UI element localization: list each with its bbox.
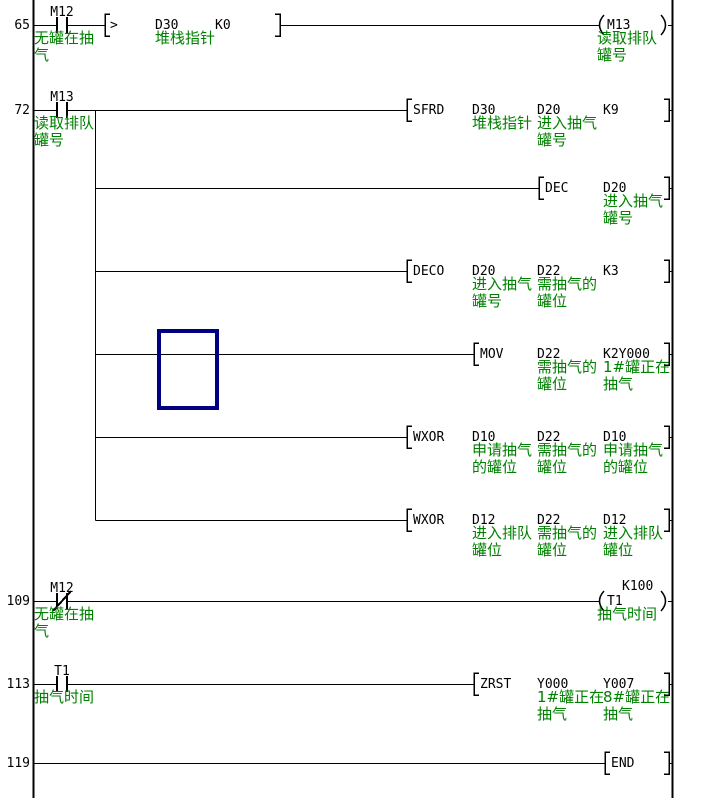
instruction-open-bracket	[407, 99, 412, 121]
contact-comment: 气	[34, 622, 49, 640]
instruction-end[interactable]: END	[34, 752, 673, 774]
operand-comment: 1#罐正在	[603, 358, 670, 376]
contact-M12[interactable]: M12无罐在抽气	[34, 581, 95, 640]
operand-comment: 进入抽气	[603, 192, 663, 210]
operand-comment: 申请抽气	[603, 441, 663, 459]
step-number: 119	[7, 756, 30, 771]
operand-comment: 进入抽气	[472, 275, 532, 293]
operand-comment: 申请抽气	[472, 441, 532, 459]
operand-comment: 需抽气的	[537, 275, 597, 293]
coil-T1[interactable]: T1K100抽气时间	[597, 579, 673, 623]
instruction-open-bracket	[539, 177, 544, 199]
coil-close-paren	[661, 15, 666, 35]
compare-block[interactable]: >D30堆栈指针K0	[68, 14, 280, 47]
step-number: 113	[7, 677, 30, 692]
operand-comment: 8#罐正在	[603, 688, 670, 706]
operand-comment: 抽气	[537, 705, 567, 723]
contact-M12[interactable]: M12无罐在抽气	[34, 5, 95, 64]
instruction-close-bracket	[664, 509, 669, 531]
coil-close-paren	[661, 591, 666, 611]
instruction-close-bracket	[664, 99, 669, 121]
operand-comment: 需抽气的	[537, 358, 597, 376]
operand-comment: 罐位	[537, 458, 567, 476]
instruction-wxor-5[interactable]: WXORD12进入排队罐位D22需抽气的罐位D12进入排队罐位	[96, 509, 673, 559]
instruction-open-bracket	[407, 509, 412, 531]
instruction-deco-2[interactable]: DECOD20进入抽气罐号D22需抽气的罐位K3	[96, 260, 673, 310]
instruction-sfrd[interactable]: SFRDD30堆栈指针D20进入抽气罐号K9	[68, 99, 673, 149]
contact-device-label: T1	[54, 664, 70, 679]
rung-119: 119END	[7, 752, 673, 774]
operand-comment: 抽气	[603, 705, 633, 723]
step-number: 109	[7, 594, 30, 609]
step-number: 65	[14, 18, 30, 33]
operand-comment: 罐位	[603, 541, 633, 559]
step-number: 72	[14, 103, 30, 118]
operand-comment: 罐号	[537, 131, 567, 149]
opcode-label: WXOR	[413, 430, 444, 445]
ladder-editor-canvas: 65M12无罐在抽气>D30堆栈指针K0M13读取排队罐号72M13读取排队罐号…	[0, 0, 708, 798]
operand-label: K9	[603, 103, 619, 118]
instruction-dec-1[interactable]: DECD20进入抽气罐号	[96, 177, 673, 227]
coil-comment: 抽气时间	[597, 605, 657, 623]
operand-comment: 堆栈指针	[155, 29, 215, 47]
selection-cursor[interactable]	[159, 331, 217, 408]
instruction-close-bracket	[664, 260, 669, 282]
ladder-diagram: 65M12无罐在抽气>D30堆栈指针K0M13读取排队罐号72M13读取排队罐号…	[0, 0, 708, 798]
operand-comment: 抽气	[603, 375, 633, 393]
opcode-label: DECO	[413, 264, 444, 279]
rung-72: 72M13读取排队罐号SFRDD30堆栈指针D20进入抽气罐号K9DECD20进…	[14, 90, 672, 559]
operand-label: K0	[215, 18, 231, 33]
contact-device-label: M12	[50, 5, 73, 20]
rung-109: 109M12无罐在抽气T1K100抽气时间	[7, 579, 673, 640]
operand-label: K3	[603, 264, 619, 279]
operand-comment: 进入抽气	[537, 114, 597, 132]
compare-operator: >	[110, 18, 118, 33]
opcode-label: SFRD	[413, 103, 444, 118]
opcode-label: MOV	[480, 347, 504, 362]
instruction-zrst[interactable]: ZRSTY0001#罐正在抽气Y0078#罐正在抽气	[68, 673, 673, 723]
operand-comment: 罐位	[537, 292, 567, 310]
contact-M13[interactable]: M13读取排队罐号	[34, 90, 95, 149]
instruction-close-bracket	[275, 14, 280, 36]
contact-comment: 气	[34, 46, 49, 64]
opcode-label: WXOR	[413, 513, 444, 528]
contact-comment: 无罐在抽	[34, 29, 94, 47]
operand-comment: 罐号	[472, 292, 502, 310]
instruction-open-bracket	[605, 752, 610, 774]
opcode-label: ZRST	[480, 677, 511, 692]
contact-comment: 抽气时间	[34, 688, 94, 706]
rung-65: 65M12无罐在抽气>D30堆栈指针K0M13读取排队罐号	[14, 5, 672, 64]
operand-comment: 需抽气的	[537, 524, 597, 542]
timer-setpoint: K100	[622, 579, 653, 594]
operand-comment: 的罐位	[472, 458, 517, 476]
opcode-label: DEC	[545, 181, 568, 196]
contact-comment: 罐号	[34, 131, 64, 149]
coil-M13[interactable]: M13读取排队罐号	[597, 15, 673, 64]
instruction-close-bracket	[664, 426, 669, 448]
operand-comment: 罐位	[472, 541, 502, 559]
operand-comment: 1#罐正在	[537, 688, 604, 706]
contact-comment: 无罐在抽	[34, 605, 94, 623]
instruction-open-bracket	[474, 343, 479, 365]
operand-comment: 罐位	[537, 375, 567, 393]
coil-comment: 读取排队	[597, 29, 657, 47]
instruction-wxor-4[interactable]: WXORD10申请抽气的罐位D22需抽气的罐位D10申请抽气的罐位	[96, 426, 673, 476]
operand-comment: 进入排队	[603, 524, 663, 542]
instruction-close-bracket	[664, 177, 669, 199]
rung-113: 113T1抽气时间ZRSTY0001#罐正在抽气Y0078#罐正在抽气	[7, 664, 673, 723]
operand-comment: 罐位	[537, 541, 567, 559]
operand-comment: 进入排队	[472, 524, 532, 542]
coil-comment: 罐号	[597, 46, 627, 64]
instruction-open-bracket	[474, 673, 479, 695]
operand-comment: 罐号	[603, 209, 633, 227]
operand-comment: 需抽气的	[537, 441, 597, 459]
instruction-close-bracket	[664, 752, 669, 774]
opcode-label: END	[611, 756, 635, 771]
contact-comment: 读取排队	[34, 114, 94, 132]
instruction-open-bracket	[407, 426, 412, 448]
operand-comment: 堆栈指针	[472, 114, 532, 132]
operand-comment: 的罐位	[603, 458, 648, 476]
instruction-mov-3[interactable]: MOVD22需抽气的罐位K2Y0001#罐正在抽气	[96, 343, 673, 393]
contact-device-label: M12	[50, 581, 73, 596]
contact-device-label: M13	[50, 90, 73, 105]
instruction-open-bracket	[407, 260, 412, 282]
